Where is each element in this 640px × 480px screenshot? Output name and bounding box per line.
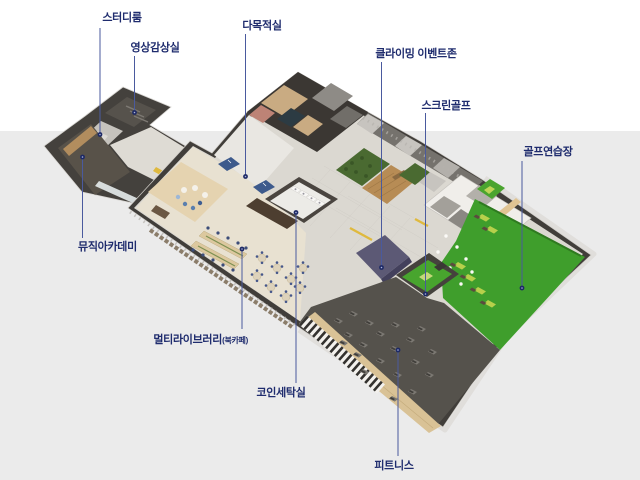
label-multi-library-main: 멀티라이브러리 bbox=[153, 334, 222, 346]
label-music-academy: 뮤직아카데미 bbox=[78, 241, 137, 253]
floorplan-infographic: 스터디룸 영상감상실 다목적실 클라이밍 이벤트존 스크린골프 골프연습장 뮤직… bbox=[0, 0, 640, 480]
label-climbing-event-zone: 클라이밍 이벤트존 bbox=[375, 48, 456, 60]
label-multi-library: 멀티라이브러리(북카페) bbox=[153, 334, 248, 347]
main-building bbox=[128, 72, 594, 433]
label-screen-golf: 스크린골프 bbox=[421, 100, 470, 112]
label-golf-practice-range: 골프연습장 bbox=[523, 146, 572, 158]
label-multi-library-suffix: (북카페) bbox=[222, 336, 248, 345]
label-fitness: 피트니스 bbox=[374, 460, 413, 472]
label-video-room: 영상감상실 bbox=[130, 42, 179, 54]
isometric-floorplan bbox=[0, 0, 640, 480]
label-study-room: 스터디룸 bbox=[102, 12, 141, 24]
label-multipurpose-room: 다목적실 bbox=[242, 20, 281, 32]
label-coin-laundry: 코인세탁실 bbox=[256, 387, 305, 399]
